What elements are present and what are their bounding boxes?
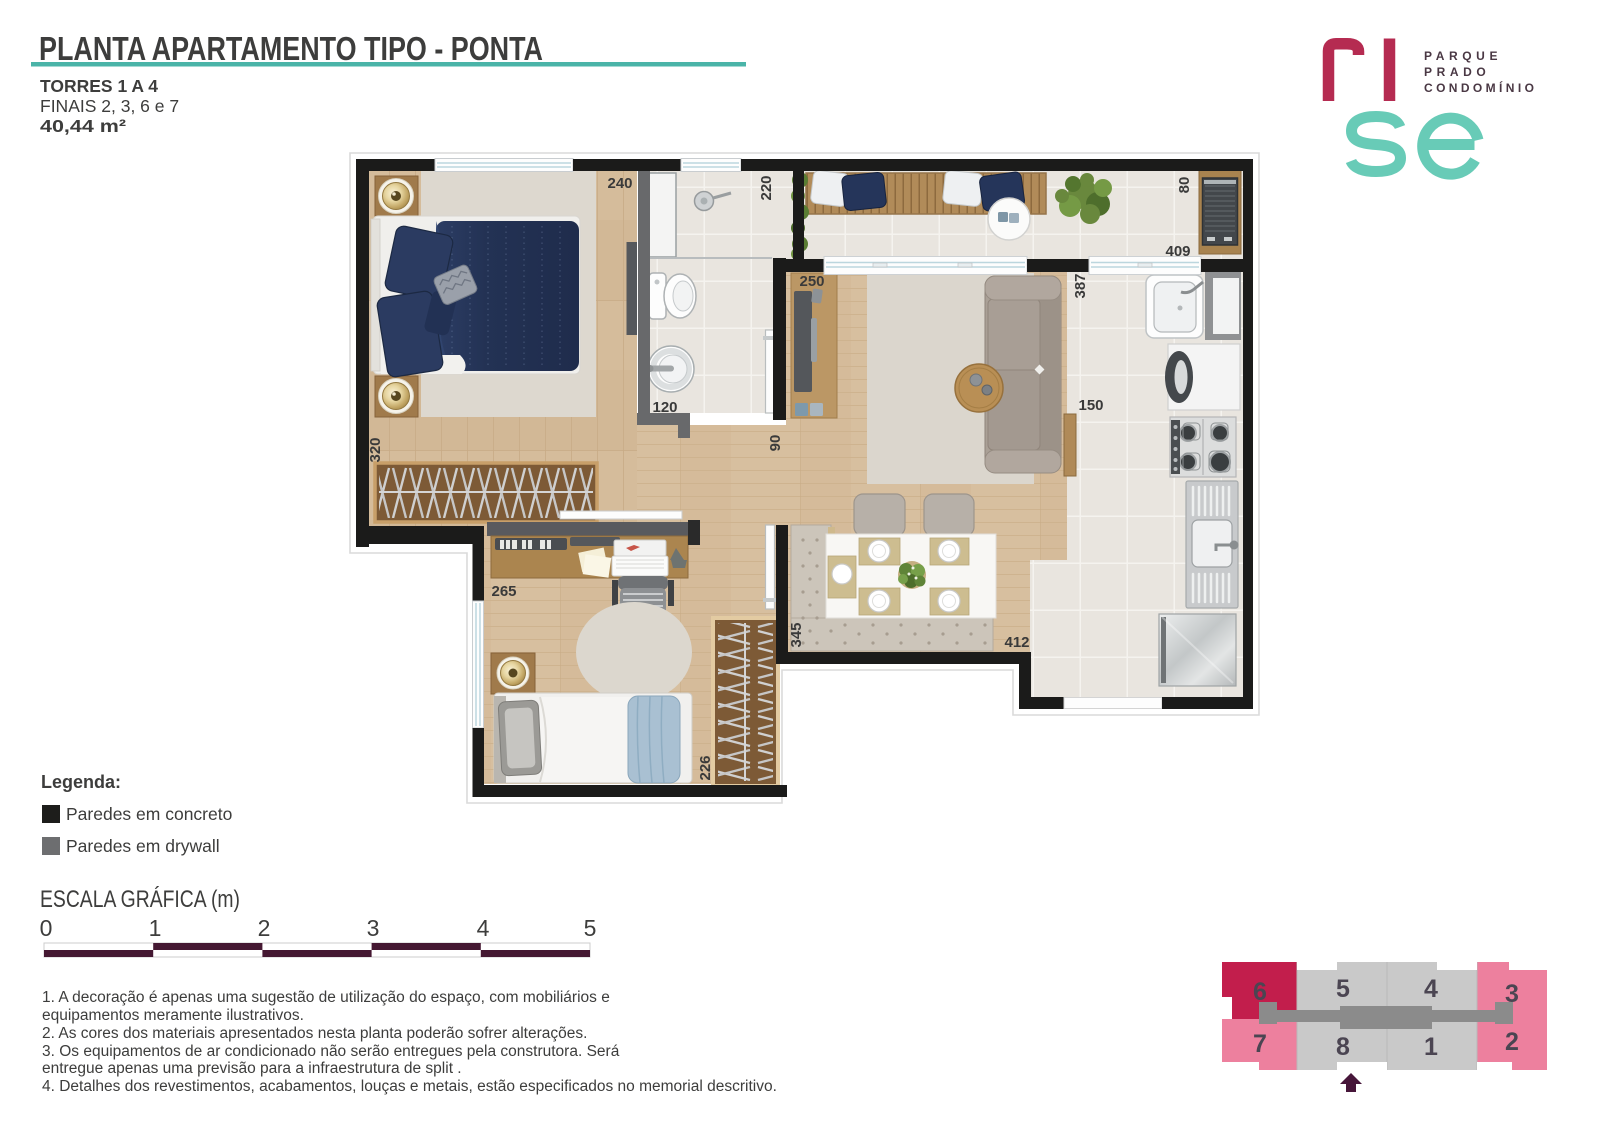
- svg-text:387: 387: [1072, 273, 1089, 298]
- svg-text:2. As cores dos materiais apre: 2. As cores dos materiais apresentados n…: [42, 1025, 587, 1042]
- svg-text:Legenda:: Legenda:: [41, 772, 121, 792]
- svg-text:4. Detalhes dos revestimentos,: 4. Detalhes dos revestimentos, acabament…: [42, 1078, 777, 1095]
- svg-text:3: 3: [1505, 980, 1519, 1008]
- svg-text:FINAIS 2, 3, 6 e 7: FINAIS 2, 3, 6 e 7: [40, 96, 179, 116]
- svg-text:220: 220: [758, 175, 775, 200]
- svg-text:150: 150: [1078, 397, 1103, 414]
- svg-text:345: 345: [788, 622, 805, 647]
- svg-text:240: 240: [607, 175, 632, 192]
- svg-text:4: 4: [1424, 975, 1438, 1003]
- svg-text:6: 6: [1253, 978, 1267, 1006]
- svg-text:PRADO: PRADO: [1424, 65, 1490, 79]
- svg-text:409: 409: [1165, 243, 1190, 260]
- svg-text:226: 226: [697, 755, 714, 780]
- svg-text:120: 120: [652, 399, 677, 416]
- svg-text:Paredes em drywall: Paredes em drywall: [66, 836, 220, 856]
- svg-text:entregue apenas uma previsão p: entregue apenas uma previsão para a infr…: [42, 1060, 462, 1077]
- svg-text:CONDOMÍNIO: CONDOMÍNIO: [1424, 80, 1537, 95]
- svg-text:Paredes em concreto: Paredes em concreto: [66, 804, 232, 824]
- svg-text:TORRES 1 A 4: TORRES 1 A 4: [40, 76, 158, 96]
- svg-text:40,44 m²: 40,44 m²: [40, 116, 126, 136]
- svg-text:3: 3: [367, 915, 380, 941]
- svg-text:2: 2: [1505, 1028, 1519, 1056]
- svg-text:PARQUE: PARQUE: [1424, 49, 1502, 63]
- svg-text:265: 265: [491, 583, 516, 600]
- svg-text:PLANTA APARTAMENTO TIPO - PONT: PLANTA APARTAMENTO TIPO - PONTA: [39, 30, 543, 67]
- svg-text:4: 4: [477, 915, 490, 941]
- svg-text:8: 8: [1336, 1033, 1350, 1061]
- svg-text:320: 320: [367, 437, 384, 462]
- svg-text:7: 7: [1253, 1030, 1267, 1058]
- svg-text:3. Os equipamentos de ar condi: 3. Os equipamentos de ar condicionado nã…: [42, 1043, 620, 1060]
- svg-text:5: 5: [584, 915, 597, 941]
- svg-text:90: 90: [767, 435, 784, 452]
- svg-text:2: 2: [258, 915, 271, 941]
- svg-text:1. A decoração é apenas uma su: 1. A decoração é apenas uma sugestão de …: [42, 989, 610, 1006]
- svg-text:1: 1: [1424, 1033, 1438, 1061]
- svg-text:ESCALA GRÁFICA (m): ESCALA GRÁFICA (m): [40, 886, 240, 913]
- svg-text:equipamentos meramente ilustra: equipamentos meramente ilustrativos.: [42, 1007, 304, 1024]
- svg-text:5: 5: [1336, 975, 1350, 1003]
- svg-text:1: 1: [149, 915, 162, 941]
- svg-text:80: 80: [1176, 177, 1193, 194]
- svg-text:412: 412: [1004, 634, 1029, 651]
- svg-text:250: 250: [799, 273, 824, 290]
- svg-text:0: 0: [40, 915, 53, 941]
